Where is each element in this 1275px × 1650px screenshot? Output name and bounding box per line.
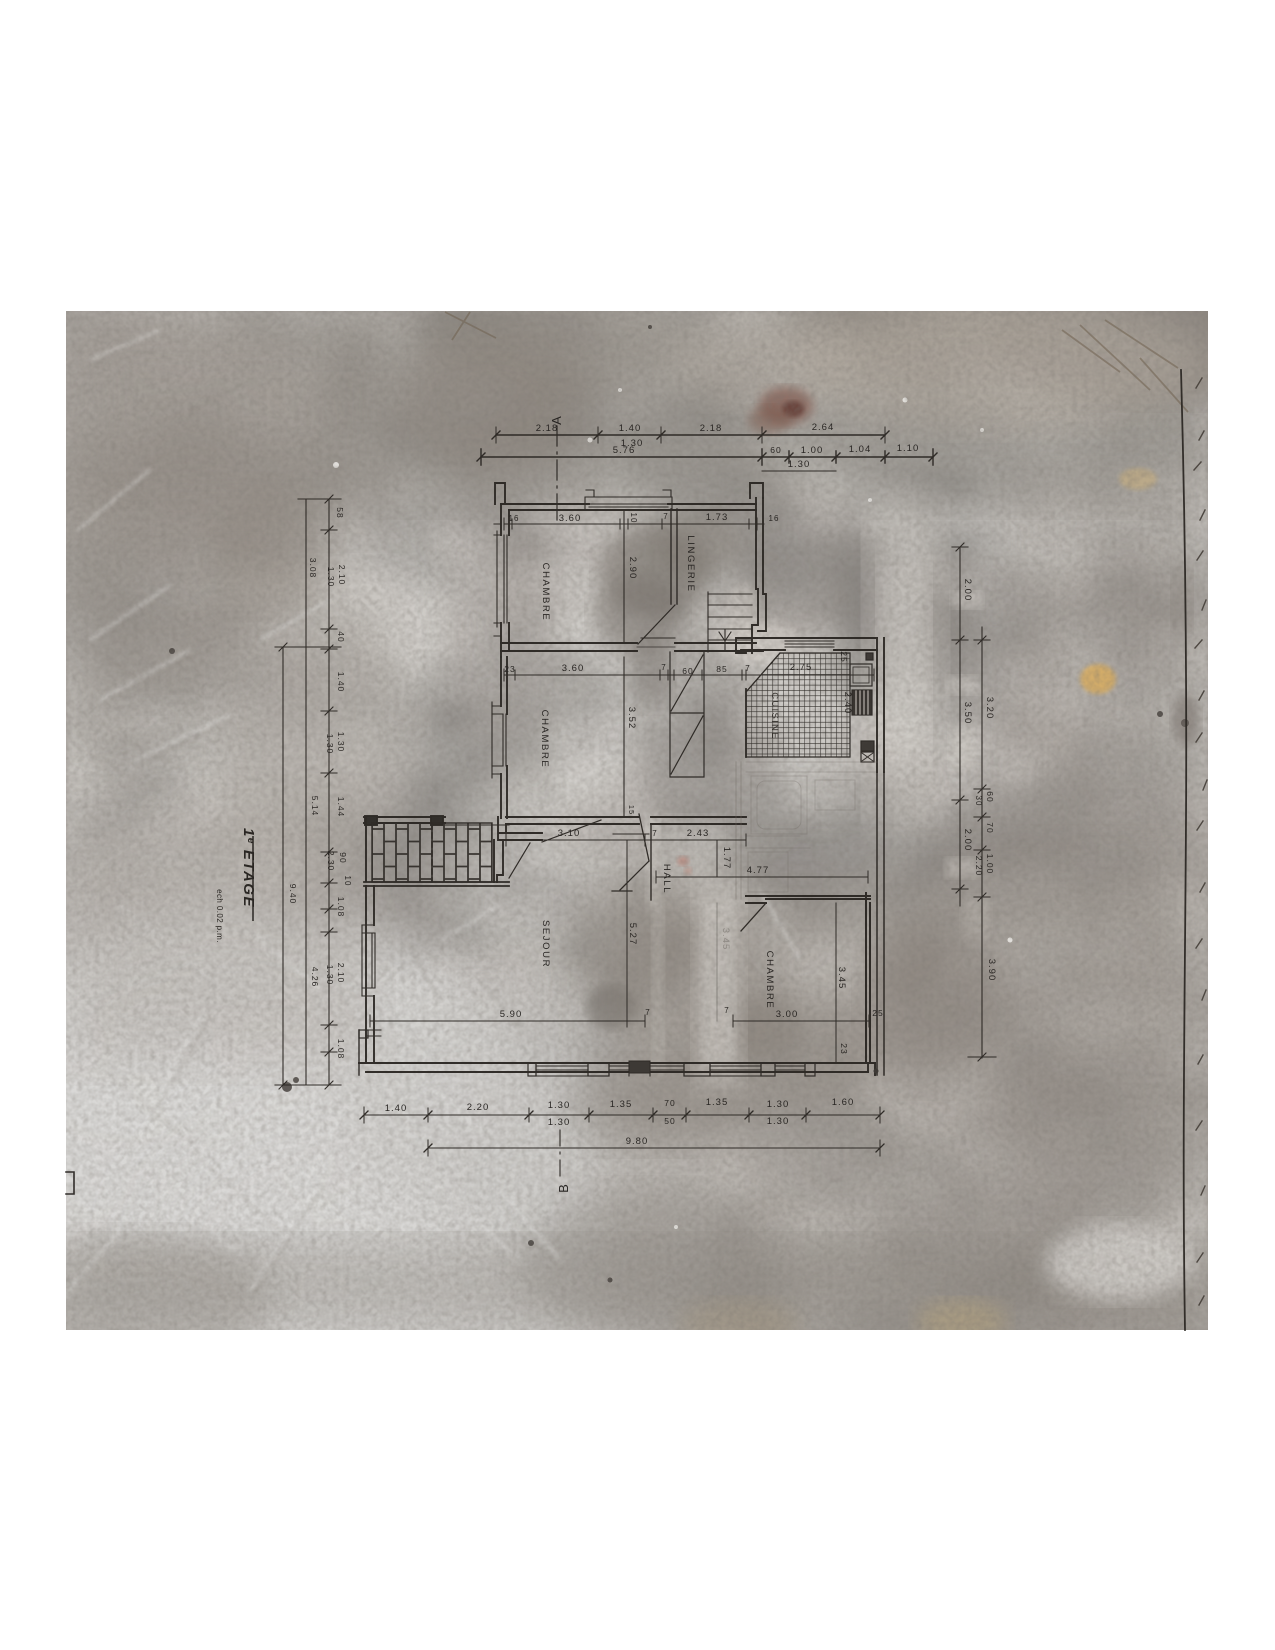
- svg-text:2.20: 2.20: [974, 856, 984, 877]
- svg-text:7: 7: [724, 1006, 729, 1015]
- svg-text:1.00: 1.00: [801, 445, 824, 456]
- svg-text:90: 90: [338, 852, 348, 863]
- svg-text:1.30: 1.30: [767, 1099, 790, 1110]
- svg-text:2.43: 2.43: [687, 828, 710, 839]
- svg-text:CUISINE: CUISINE: [769, 692, 780, 740]
- svg-text:ech 0.02 p.m.: ech 0.02 p.m.: [215, 889, 224, 943]
- svg-text:CHAMBRE: CHAMBRE: [539, 710, 550, 769]
- svg-text:7: 7: [745, 664, 750, 673]
- svg-text:2.75: 2.75: [790, 662, 813, 673]
- svg-text:70: 70: [664, 1098, 675, 1108]
- svg-text:3.45: 3.45: [836, 967, 847, 990]
- svg-text:2.00: 2.00: [962, 579, 973, 602]
- svg-text:25: 25: [872, 1008, 883, 1018]
- svg-text:5.76: 5.76: [613, 445, 636, 456]
- svg-text:3.90: 3.90: [986, 959, 997, 982]
- svg-text:1.30: 1.30: [326, 567, 336, 588]
- svg-text:1.73: 1.73: [706, 512, 729, 523]
- svg-text:85: 85: [716, 664, 727, 674]
- svg-text:9.80: 9.80: [626, 1136, 649, 1147]
- svg-text:3.00: 3.00: [776, 1009, 799, 1020]
- svg-text:1.44: 1.44: [336, 797, 346, 818]
- svg-text:1.40: 1.40: [619, 423, 642, 434]
- svg-text:40: 40: [336, 631, 346, 642]
- svg-text:16: 16: [509, 514, 520, 523]
- svg-text:1.30: 1.30: [767, 1116, 790, 1127]
- svg-text:CHAMBRE: CHAMBRE: [540, 563, 551, 622]
- svg-text:5.27: 5.27: [627, 923, 638, 946]
- svg-text:1.08: 1.08: [336, 897, 346, 918]
- svg-text:1.30: 1.30: [325, 734, 335, 755]
- svg-text:23: 23: [504, 664, 515, 674]
- svg-text:7: 7: [652, 829, 657, 838]
- svg-text:CHAMBRE: CHAMBRE: [764, 951, 775, 1010]
- svg-text:50: 50: [664, 1116, 675, 1126]
- svg-text:1.30: 1.30: [336, 732, 346, 753]
- svg-text:LINGERIE: LINGERIE: [685, 535, 696, 592]
- svg-text:1.40: 1.40: [385, 1103, 408, 1114]
- svg-text:1.40: 1.40: [336, 672, 346, 693]
- svg-text:2.64: 2.64: [812, 422, 835, 433]
- svg-text:1.35: 1.35: [610, 1099, 633, 1110]
- svg-text:5.14: 5.14: [310, 796, 320, 817]
- svg-text:4.77: 4.77: [747, 865, 770, 876]
- svg-text:2.40: 2.40: [842, 692, 853, 715]
- svg-text:2.18: 2.18: [700, 423, 723, 434]
- svg-text:4.26: 4.26: [310, 967, 320, 988]
- svg-text:10: 10: [343, 876, 352, 887]
- svg-text:7: 7: [663, 512, 668, 521]
- svg-text:15: 15: [627, 805, 636, 815]
- svg-text:25: 25: [839, 651, 849, 662]
- svg-text:1.30: 1.30: [548, 1117, 571, 1128]
- svg-text:3.52: 3.52: [626, 707, 637, 730]
- svg-text:2.00: 2.00: [962, 829, 973, 852]
- svg-text:60: 60: [682, 666, 693, 676]
- svg-text:2.18: 2.18: [536, 423, 559, 434]
- svg-text:70: 70: [985, 822, 995, 833]
- svg-text:60: 60: [770, 445, 781, 455]
- svg-text:9.40: 9.40: [288, 884, 298, 905]
- svg-text:SEJOUR: SEJOUR: [540, 920, 551, 968]
- svg-text:58: 58: [335, 507, 345, 518]
- svg-text:1.10: 1.10: [897, 443, 920, 454]
- svg-text:1.35: 1.35: [706, 1097, 729, 1108]
- svg-text:2.30: 2.30: [326, 851, 336, 872]
- svg-text:2.10: 2.10: [336, 963, 346, 984]
- svg-text:30: 30: [974, 796, 983, 807]
- svg-text:3.60: 3.60: [559, 513, 582, 524]
- svg-text:3.45: 3.45: [720, 928, 731, 951]
- svg-text:1.00: 1.00: [985, 854, 995, 875]
- svg-text:60: 60: [985, 791, 995, 802]
- svg-text:3.08: 3.08: [308, 558, 318, 579]
- svg-text:1.30: 1.30: [548, 1100, 571, 1111]
- svg-text:B: B: [556, 1183, 571, 1193]
- svg-text:2.90: 2.90: [627, 557, 638, 580]
- svg-text:5.90: 5.90: [500, 1009, 523, 1020]
- svg-text:23: 23: [839, 1043, 849, 1054]
- svg-text:10: 10: [629, 513, 638, 524]
- svg-text:1.30: 1.30: [325, 965, 335, 986]
- svg-text:1.04: 1.04: [849, 444, 872, 455]
- svg-text:7: 7: [661, 663, 666, 672]
- svg-text:HALL: HALL: [661, 864, 672, 894]
- svg-text:3.10: 3.10: [558, 828, 581, 839]
- svg-text:3.20: 3.20: [984, 697, 995, 720]
- svg-text:1.30: 1.30: [788, 459, 811, 470]
- svg-text:2.10: 2.10: [337, 565, 347, 586]
- svg-text:1.60: 1.60: [832, 1097, 855, 1108]
- svg-text:3.50: 3.50: [962, 702, 973, 725]
- svg-text:1.77: 1.77: [721, 847, 732, 870]
- svg-text:16: 16: [769, 514, 780, 523]
- svg-text:2.20: 2.20: [467, 1102, 490, 1113]
- svg-text:3.60: 3.60: [562, 663, 585, 674]
- svg-text:1.08: 1.08: [336, 1039, 346, 1060]
- svg-text:7: 7: [645, 1008, 650, 1017]
